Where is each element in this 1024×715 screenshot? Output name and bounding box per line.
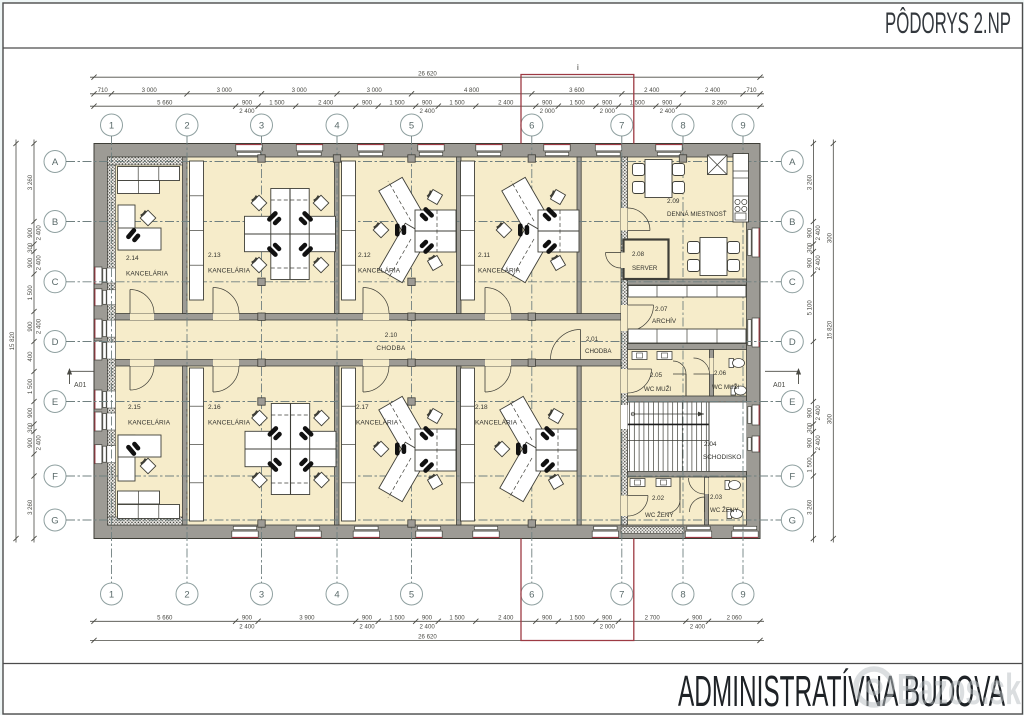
svg-text:1 500: 1 500 bbox=[269, 99, 285, 106]
svg-text:SCHODISKO: SCHODISKO bbox=[703, 454, 741, 461]
svg-text:900: 900 bbox=[27, 257, 34, 268]
svg-text:F: F bbox=[789, 471, 795, 482]
svg-text:KANCELÁRIA: KANCELÁRIA bbox=[128, 418, 171, 427]
svg-text:i: i bbox=[577, 63, 579, 72]
svg-text:2.15: 2.15 bbox=[128, 404, 141, 411]
svg-text:WC ŽENY: WC ŽENY bbox=[645, 511, 674, 519]
svg-text:5 660: 5 660 bbox=[157, 99, 173, 106]
svg-text:KANCELÁRIA: KANCELÁRIA bbox=[126, 269, 169, 278]
svg-text:1 500: 1 500 bbox=[569, 99, 585, 106]
svg-text:9: 9 bbox=[740, 120, 745, 131]
svg-text:900: 900 bbox=[602, 99, 613, 106]
svg-text:KANCELÁRIA: KANCELÁRIA bbox=[208, 266, 251, 275]
svg-text:KANCELÁRIA: KANCELÁRIA bbox=[478, 266, 521, 275]
svg-text:G: G bbox=[789, 515, 796, 526]
svg-text:2 400: 2 400 bbox=[36, 255, 43, 271]
svg-text:WC ŽENY: WC ŽENY bbox=[710, 506, 739, 514]
svg-text:300: 300 bbox=[27, 242, 34, 253]
svg-text:4 800: 4 800 bbox=[464, 87, 480, 94]
svg-text:900: 900 bbox=[806, 227, 813, 238]
svg-text:2.14: 2.14 bbox=[126, 255, 139, 262]
svg-text:B: B bbox=[789, 217, 795, 228]
svg-text:2 400: 2 400 bbox=[498, 615, 514, 622]
svg-text:3: 3 bbox=[259, 589, 264, 600]
svg-text:300: 300 bbox=[27, 422, 34, 433]
svg-text:3 000: 3 000 bbox=[217, 87, 233, 94]
svg-text:A01: A01 bbox=[74, 382, 87, 389]
svg-text:E: E bbox=[52, 397, 58, 408]
svg-text:D: D bbox=[52, 337, 59, 348]
svg-text:WC MUŽI: WC MUŽI bbox=[644, 385, 671, 393]
svg-text:26 620: 26 620 bbox=[418, 70, 437, 77]
svg-text:2 400: 2 400 bbox=[36, 318, 43, 334]
svg-text:5: 5 bbox=[409, 120, 414, 131]
svg-text:2 400: 2 400 bbox=[359, 623, 375, 630]
svg-text:2 400: 2 400 bbox=[705, 87, 721, 94]
svg-text:7: 7 bbox=[619, 120, 624, 131]
svg-text:8: 8 bbox=[680, 120, 685, 131]
svg-text:ARCHÍV: ARCHÍV bbox=[652, 316, 677, 325]
svg-text:900: 900 bbox=[27, 227, 34, 238]
svg-text:9: 9 bbox=[740, 589, 745, 600]
svg-text:KANCELÁRIA: KANCELÁRIA bbox=[475, 418, 518, 427]
svg-text:2 400: 2 400 bbox=[815, 405, 822, 421]
svg-text:400: 400 bbox=[27, 351, 34, 362]
svg-text:1: 1 bbox=[109, 589, 114, 600]
svg-text:SERVER: SERVER bbox=[632, 265, 658, 272]
svg-text:KANCELÁRIA: KANCELÁRIA bbox=[208, 418, 251, 427]
svg-text:2 400: 2 400 bbox=[815, 255, 822, 271]
svg-text:2 400: 2 400 bbox=[318, 99, 334, 106]
svg-text:3 000: 3 000 bbox=[142, 87, 158, 94]
svg-text:A: A bbox=[52, 157, 59, 168]
svg-text:900: 900 bbox=[806, 437, 813, 448]
svg-text:900: 900 bbox=[27, 321, 34, 332]
svg-text:1 500: 1 500 bbox=[27, 285, 34, 301]
svg-text:2 000: 2 000 bbox=[540, 108, 556, 115]
svg-text:1 500: 1 500 bbox=[449, 99, 465, 106]
svg-text:3: 3 bbox=[259, 120, 264, 131]
svg-text:2 400: 2 400 bbox=[498, 99, 514, 106]
svg-text:900: 900 bbox=[242, 99, 253, 106]
svg-text:6: 6 bbox=[529, 589, 534, 600]
svg-text:2 400: 2 400 bbox=[239, 623, 255, 630]
svg-text:C: C bbox=[52, 277, 59, 288]
svg-text:2.04: 2.04 bbox=[704, 441, 717, 448]
svg-text:2 400: 2 400 bbox=[815, 435, 822, 451]
svg-text:2 400: 2 400 bbox=[36, 435, 43, 451]
svg-text:2 400: 2 400 bbox=[690, 623, 706, 630]
svg-text:3 260: 3 260 bbox=[712, 99, 728, 106]
svg-text:900: 900 bbox=[806, 407, 813, 418]
svg-text:2.08: 2.08 bbox=[632, 251, 645, 258]
svg-text:3 000: 3 000 bbox=[292, 87, 308, 94]
svg-text:900: 900 bbox=[542, 615, 553, 622]
svg-text:300: 300 bbox=[826, 413, 833, 424]
svg-text:3 260: 3 260 bbox=[806, 174, 813, 190]
svg-text:1 500: 1 500 bbox=[389, 99, 405, 106]
svg-text:900: 900 bbox=[422, 615, 433, 622]
svg-text:900: 900 bbox=[27, 437, 34, 448]
svg-text:2 400: 2 400 bbox=[419, 623, 435, 630]
svg-text:3 260: 3 260 bbox=[806, 499, 813, 515]
svg-text:KANCELÁRIA: KANCELÁRIA bbox=[358, 266, 401, 275]
svg-text:900: 900 bbox=[602, 615, 613, 622]
svg-text:8: 8 bbox=[680, 589, 685, 600]
svg-text:2.06: 2.06 bbox=[714, 370, 727, 377]
svg-text:2.07: 2.07 bbox=[655, 306, 668, 313]
svg-text:7: 7 bbox=[619, 589, 624, 600]
svg-text:900: 900 bbox=[362, 615, 373, 622]
svg-text:3 900: 3 900 bbox=[299, 615, 315, 622]
svg-text:A: A bbox=[789, 157, 796, 168]
svg-text:2 000: 2 000 bbox=[600, 108, 616, 115]
svg-text:2 400: 2 400 bbox=[644, 87, 660, 94]
svg-text:710: 710 bbox=[746, 87, 757, 94]
svg-text:3 260: 3 260 bbox=[27, 499, 34, 515]
svg-text:900: 900 bbox=[27, 407, 34, 418]
svg-text:2 060: 2 060 bbox=[727, 615, 743, 622]
svg-text:Bazos.sk: Bazos.sk bbox=[897, 665, 1021, 714]
svg-text:1 500: 1 500 bbox=[806, 457, 813, 473]
svg-text:3 260: 3 260 bbox=[27, 174, 34, 190]
svg-text:2: 2 bbox=[184, 120, 189, 131]
svg-text:A01: A01 bbox=[773, 382, 786, 389]
svg-text:900: 900 bbox=[662, 99, 673, 106]
svg-text:2.10: 2.10 bbox=[385, 332, 398, 339]
svg-text:2 700: 2 700 bbox=[645, 615, 661, 622]
svg-text:900: 900 bbox=[242, 615, 253, 622]
svg-text:1 500: 1 500 bbox=[449, 615, 465, 622]
svg-text:D: D bbox=[789, 337, 796, 348]
svg-text:1: 1 bbox=[109, 120, 114, 131]
svg-text:1 500: 1 500 bbox=[630, 99, 646, 106]
svg-text:1 500: 1 500 bbox=[389, 615, 405, 622]
svg-text:26 620: 26 620 bbox=[418, 634, 437, 641]
svg-text:C: C bbox=[789, 277, 796, 288]
svg-text:6: 6 bbox=[529, 120, 534, 131]
svg-text:2 400: 2 400 bbox=[36, 225, 43, 241]
svg-text:2.13: 2.13 bbox=[208, 252, 221, 259]
svg-text:900: 900 bbox=[692, 615, 703, 622]
svg-text:300: 300 bbox=[826, 232, 833, 243]
svg-text:2.03: 2.03 bbox=[710, 494, 723, 501]
svg-text:5 660: 5 660 bbox=[157, 615, 173, 622]
svg-text:2.01: 2.01 bbox=[586, 336, 599, 343]
svg-text:2.18: 2.18 bbox=[475, 404, 488, 411]
svg-text:2: 2 bbox=[184, 589, 189, 600]
svg-text:3 600: 3 600 bbox=[569, 87, 585, 94]
svg-text:B: B bbox=[52, 217, 58, 228]
svg-text:2 400: 2 400 bbox=[419, 108, 435, 115]
svg-text:5: 5 bbox=[409, 589, 414, 600]
svg-text:2.17: 2.17 bbox=[356, 404, 369, 411]
svg-text:900: 900 bbox=[362, 99, 373, 106]
svg-text:4: 4 bbox=[334, 589, 339, 600]
svg-text:2.05: 2.05 bbox=[650, 372, 663, 379]
svg-text:2 400: 2 400 bbox=[660, 108, 676, 115]
svg-text:15 820: 15 820 bbox=[9, 331, 16, 350]
svg-text:DENNÁ MIESTNOSŤ: DENNÁ MIESTNOSŤ bbox=[667, 210, 727, 218]
svg-text:2 400: 2 400 bbox=[815, 225, 822, 241]
svg-text:2.11: 2.11 bbox=[478, 252, 491, 259]
svg-text:2 400: 2 400 bbox=[239, 108, 255, 115]
svg-text:PÔDORYS 2.NP: PÔDORYS 2.NP bbox=[885, 6, 1011, 40]
svg-text:3 000: 3 000 bbox=[367, 87, 383, 94]
svg-text:2.09: 2.09 bbox=[667, 198, 680, 205]
svg-text:KANCELÁRIA: KANCELÁRIA bbox=[356, 418, 399, 427]
svg-text:900: 900 bbox=[422, 99, 433, 106]
svg-text:710: 710 bbox=[98, 87, 109, 94]
svg-text:WC MUŽI: WC MUŽI bbox=[712, 383, 739, 391]
svg-text:900: 900 bbox=[542, 99, 553, 106]
svg-text:CHODBA: CHODBA bbox=[376, 345, 406, 352]
svg-text:1 500: 1 500 bbox=[569, 615, 585, 622]
svg-text:4: 4 bbox=[334, 120, 339, 131]
svg-text:15 820: 15 820 bbox=[826, 320, 833, 339]
svg-text:1 500: 1 500 bbox=[27, 378, 34, 394]
svg-text:300: 300 bbox=[806, 242, 813, 253]
svg-text:2.16: 2.16 bbox=[208, 404, 221, 411]
svg-text:F: F bbox=[52, 471, 58, 482]
svg-text:E: E bbox=[789, 397, 795, 408]
svg-text:2 000: 2 000 bbox=[600, 623, 616, 630]
svg-text:G: G bbox=[51, 515, 58, 526]
svg-text:CHODBA: CHODBA bbox=[585, 348, 612, 355]
svg-text:900: 900 bbox=[806, 257, 813, 268]
svg-text:5 100: 5 100 bbox=[806, 300, 813, 316]
svg-text:2.02: 2.02 bbox=[652, 495, 665, 502]
svg-text:2.12: 2.12 bbox=[358, 252, 371, 259]
svg-text:300: 300 bbox=[806, 422, 813, 433]
